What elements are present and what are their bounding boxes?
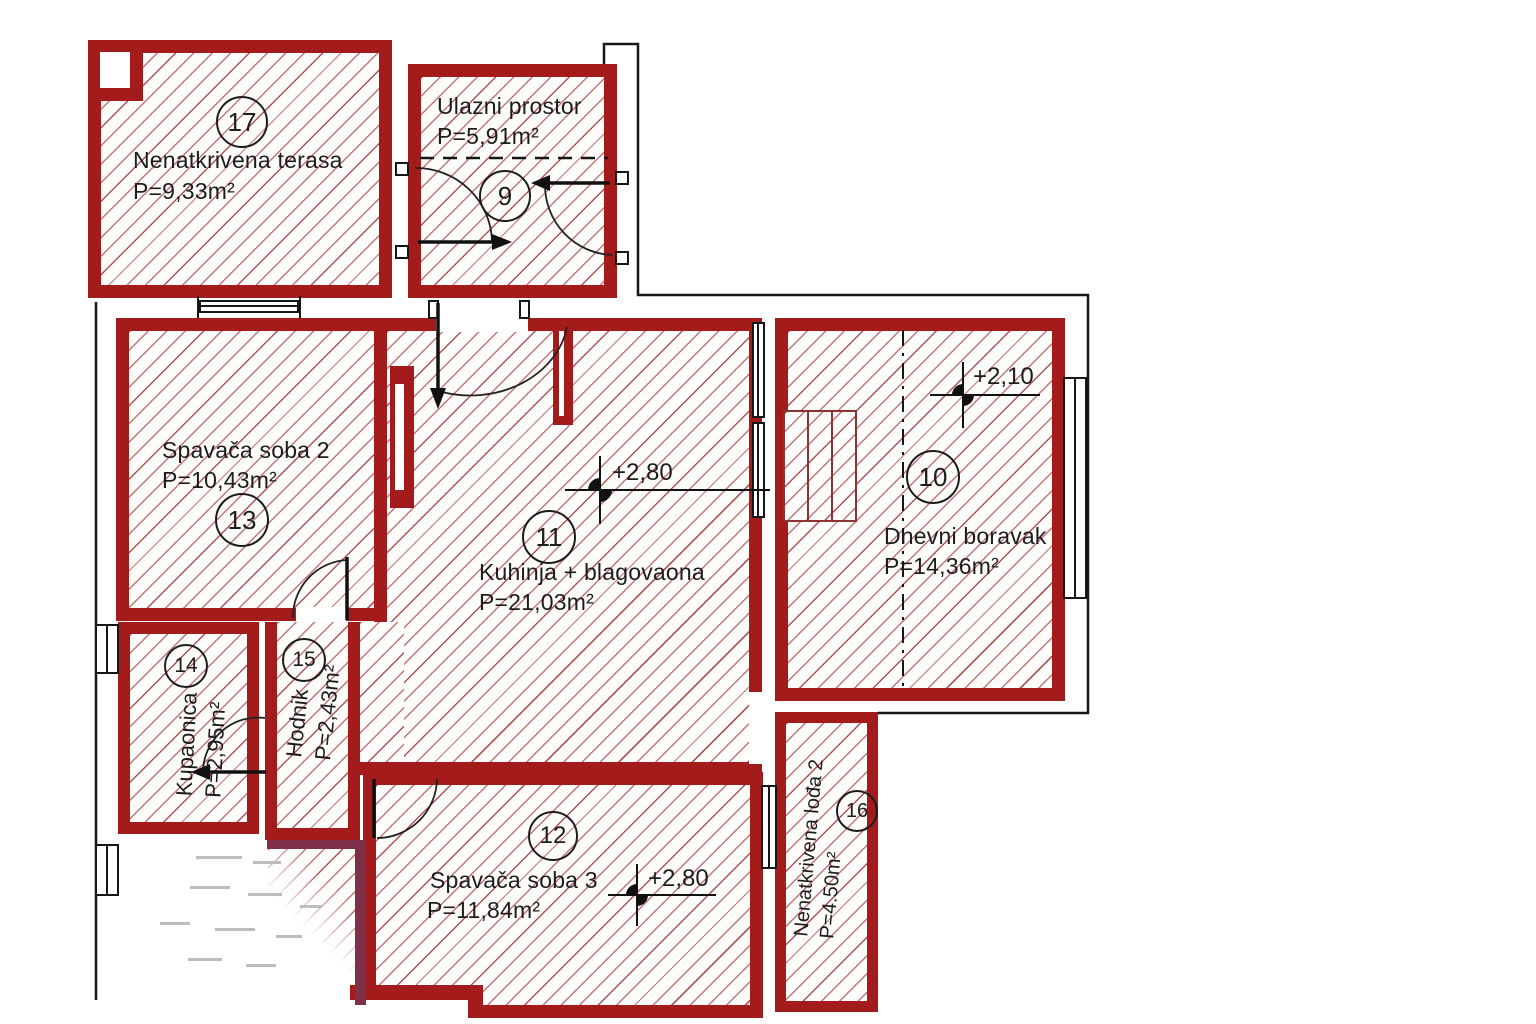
level-value-living: +2,10 <box>973 363 1034 391</box>
room-area-kitchen: P=21,03m² <box>479 589 594 616</box>
room-number-9: 9 <box>498 181 512 212</box>
room-name-terrace: Nenatkrivena terasa <box>133 147 343 174</box>
jamb-kitchen-door-left <box>429 301 438 318</box>
kitchen-wall-jog-gap <box>395 384 404 490</box>
room-name-entry: Ulazni prostor <box>437 93 582 120</box>
floor-plan: 17 9 13 11 10 14 15 12 16 Nenatkrivena t… <box>0 0 1536 1024</box>
room-number-badge-10: 10 <box>906 450 960 504</box>
jamb-entry-right-top <box>616 172 628 184</box>
kitchen-door-opening <box>436 318 528 332</box>
room-area-living: P=14,36m² <box>884 553 999 580</box>
jamb-entry-left-bottom <box>396 246 408 258</box>
living-room-closet <box>783 410 857 522</box>
kitchen-extension <box>360 622 404 762</box>
room-number-badge-13: 13 <box>215 493 269 547</box>
room-name-bedroom2: Spavača soba 2 <box>162 437 330 464</box>
accent-wall-vertical <box>355 840 366 1005</box>
terrace-corner-notch <box>100 52 143 101</box>
bedroom3-step-wall <box>350 985 483 1000</box>
kitchen-bottom-wall-piece <box>352 762 382 775</box>
erased-mark <box>196 856 242 859</box>
window-left-2 <box>96 845 118 895</box>
room-number-13: 13 <box>228 505 257 536</box>
accent-wall-horizontal <box>267 840 365 849</box>
room-number-12: 12 <box>540 822 567 850</box>
room-label-bathroom: Kupaonica P=2,95m² <box>169 692 232 799</box>
room-area-terrace: P=9,33m² <box>133 178 235 205</box>
room-area-bedroom2: P=10,43m² <box>162 467 277 494</box>
window-terrace-lines <box>198 296 300 318</box>
window-bedroom3-right <box>762 786 776 868</box>
room-number-badge-12: 12 <box>528 811 578 861</box>
room-number-10: 10 <box>919 462 948 493</box>
room-area-entry: P=5,91m² <box>437 123 539 150</box>
room-number-17: 17 <box>228 107 257 138</box>
kitchen-right-opening <box>749 692 763 764</box>
erased-mark <box>190 886 230 889</box>
window-terrace <box>200 301 298 312</box>
bedroom3-step-wall-vert <box>468 985 483 1018</box>
window-left-1 <box>96 625 118 673</box>
erased-mark <box>248 893 282 896</box>
window-living-right <box>1064 378 1086 598</box>
room-number-badge-11: 11 <box>522 510 576 564</box>
room-number-badge-9: 9 <box>479 170 531 222</box>
room-number-badge-17: 17 <box>216 96 268 148</box>
bedroom2-door-opening <box>296 607 346 621</box>
erased-mark <box>215 928 255 931</box>
kitchen-wall-stub-gap <box>559 331 564 416</box>
room-number-badge-14: 14 <box>164 644 208 688</box>
room-name-bedroom3: Spavača soba 3 <box>430 867 598 894</box>
erased-mark <box>246 964 276 967</box>
jamb-kitchen-door-right <box>520 301 529 318</box>
jamb-entry-right-bottom <box>616 252 628 264</box>
erased-mark <box>300 905 322 908</box>
room-name-kitchen: Kuhinja + blagovaona <box>479 559 705 586</box>
closet-divider <box>831 412 833 520</box>
level-value-kitchen: +2,80 <box>612 459 673 487</box>
erased-area-fade <box>268 849 360 977</box>
bedroom3-step-cut <box>350 1000 480 1024</box>
room-number-11: 11 <box>536 522 563 553</box>
room-area-bathroom: P=2,95m² <box>198 693 232 798</box>
room-number-14: 14 <box>174 654 197 678</box>
level-value-bedroom3: +2,80 <box>648 865 709 893</box>
erased-mark <box>188 958 222 961</box>
jamb-entry-left-top <box>396 163 408 175</box>
erased-mark <box>276 935 302 938</box>
closet-divider <box>807 412 809 520</box>
erased-mark <box>160 922 190 925</box>
room-bedroom3-12 <box>363 772 763 1018</box>
room-label-hall: Hodnik P=2,43m² <box>279 660 347 762</box>
room-name-living: Dnevni boravak <box>884 523 1047 550</box>
erased-mark <box>253 861 281 864</box>
room-area-bedroom3: P=11,84m² <box>427 897 540 924</box>
